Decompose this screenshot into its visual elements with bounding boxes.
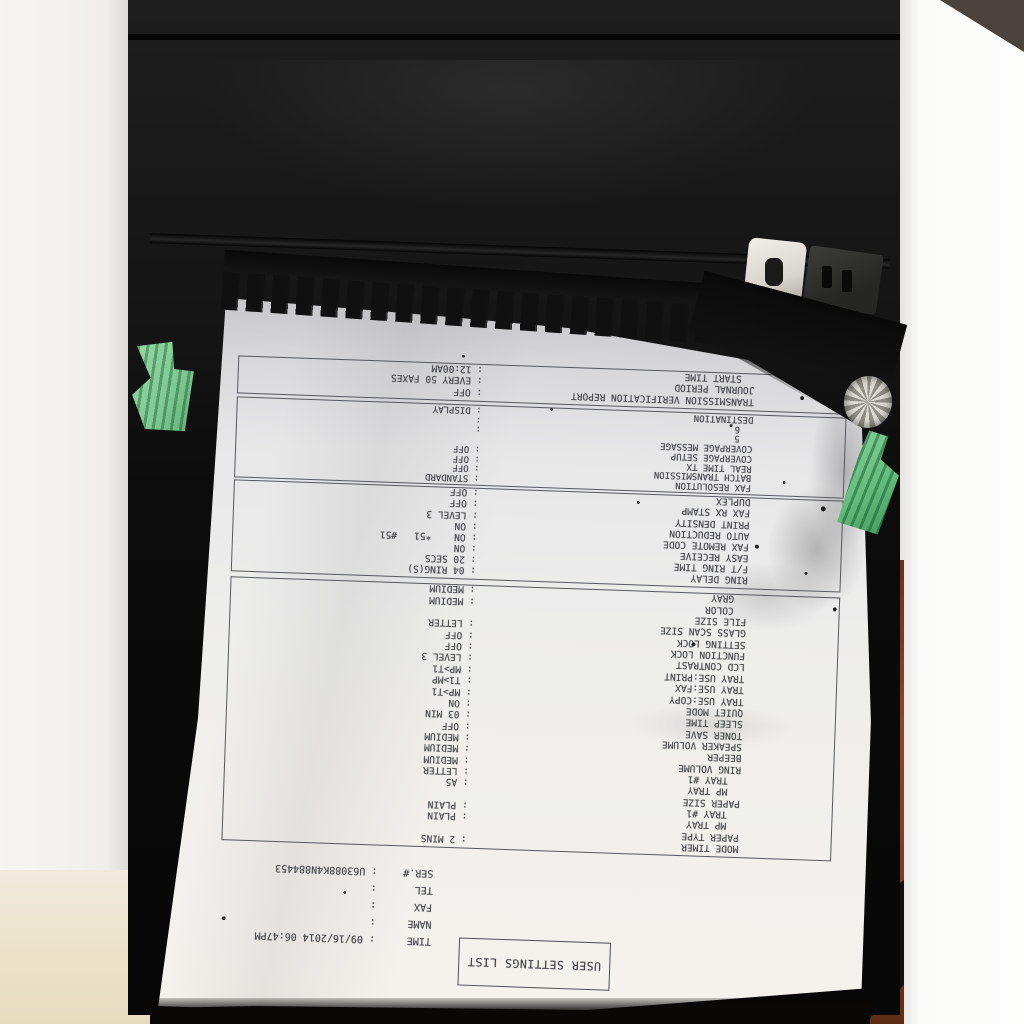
setting-value: : LEVEL 3: [234, 501, 478, 521]
report-info-block: TIME: 09/16/2014 06:47PMNAME:FAX:TEL:SER…: [139, 854, 434, 949]
setting-value: : EVERY 50 FAXES: [239, 366, 483, 386]
setting-label: COVERPAGE MESSAGE: [480, 433, 752, 452]
setting-label: SETTING LOCK: [473, 629, 745, 650]
setting-label: REAL TIME TX: [480, 453, 752, 472]
setting-label: NAME: [375, 914, 432, 933]
setting-value: : 12:00AM: [239, 355, 483, 375]
settings-row: SER.#: U63088K4N884453: [141, 854, 433, 881]
printed-page: USER SETTINGS LIST TIME: 09/16/2014 06:4…: [138, 288, 878, 1023]
setting-value: : OFF: [238, 378, 482, 398]
setting-label: GRAY: [475, 584, 747, 605]
setting-label: QUIET MODE: [471, 697, 743, 718]
setting-value: : STANDARD: [235, 464, 479, 482]
setting-label: COVERPAGE SETUP: [480, 443, 752, 462]
settings-row: FAX:: [140, 888, 432, 915]
setting-value: : MP>T1: [228, 655, 472, 675]
setting-label: FAX RX STAMP: [478, 498, 750, 519]
settings-row: MP TRAY: A5: [225, 768, 741, 797]
setting-value: : T1>MP: [228, 666, 472, 686]
settings-row: MODE TIMER: 2 MINS: [223, 825, 739, 854]
settings-row: TEL:: [141, 871, 433, 898]
setting-label: PRINT DENSITY: [478, 509, 750, 530]
settings-row: TIME: 09/16/2014 06:47PM: [139, 922, 431, 949]
setting-label: TIME: [375, 931, 432, 950]
setting-label: GLASS SCAN SIZE: [474, 618, 746, 639]
settings-row: SLEEP TIME: 03 MIN: [227, 700, 743, 729]
settings-row: FUNCTION LOCK: OFF: [229, 632, 745, 661]
settings-row: JOURNAL PERIOD: EVERY 50 FAXES: [239, 366, 755, 396]
setting-label: PAPER SIZE: [468, 788, 740, 809]
settings-row: SPEAKER VOLUME: MEDIUM: [226, 723, 742, 752]
settings-row: PAPER TYPE: [223, 813, 739, 842]
setting-value: : DISPLAY: [238, 396, 482, 414]
setting-value: : OFF: [236, 435, 480, 453]
setting-label: MP TRAY: [468, 777, 740, 798]
setting-value: : OFF: [234, 490, 478, 510]
setting-value: : MEDIUM: [226, 723, 470, 743]
report-title: USER SETTINGS LIST: [457, 937, 611, 990]
setting-value: : OFF: [229, 632, 473, 652]
setting-value: : MP>T1: [228, 677, 472, 697]
settings-row: TRANSMISSION VERIFICATION REPORT: OFF: [238, 378, 754, 408]
settings-row: BEEPER: MEDIUM: [226, 734, 742, 763]
setting-label: TEL: [377, 880, 434, 899]
setting-value: :: [139, 905, 375, 930]
settings-row: TRAY #1: LETTER: [225, 757, 741, 786]
setting-label: FAX: [376, 897, 433, 916]
settings-row: LCD CONTRAST: LEVEL 3: [229, 643, 745, 672]
setting-label: TRAY USE:FAX: [472, 675, 744, 696]
settings-report-sheet: USER SETTINGS LIST TIME: 09/16/2014 06:4…: [131, 280, 886, 1024]
settings-box-fax-receive: RING DELAY: 04 RING(S)F/T RING TIME: 20 …: [231, 479, 844, 592]
settings-row: FAX REMOTE CODE: ON *51 #51: [233, 523, 749, 552]
setting-value: [230, 598, 474, 618]
setting-label: PAPER TYPE: [467, 822, 739, 843]
photo-scene: USER SETTINGS LIST TIME: 09/16/2014 06:4…: [0, 0, 1024, 1024]
setting-label: F/T RING TIME: [476, 554, 748, 575]
settings-row: 6:: [237, 405, 753, 433]
settings-row: GLASS SCAN SIZE: LETTER: [230, 609, 746, 638]
setting-value: : OFF: [235, 479, 479, 499]
setting-value: :: [237, 405, 481, 423]
setting-label: SLEEP TIME: [471, 709, 743, 730]
settings-row: 5:: [237, 415, 753, 443]
setting-label: TRANSMISSION VERIFICATION REPORT: [482, 386, 754, 407]
settings-row: BATCH TRANSMISSION: OFF: [236, 454, 752, 482]
setting-label: BEEPER: [470, 743, 742, 764]
setting-value: :: [237, 415, 481, 433]
scanner-hinge-hole: [765, 258, 783, 286]
settings-row: EASY RECEIVE: ON: [233, 534, 749, 563]
setting-value: : ON: [233, 512, 477, 532]
settings-row: FILE SIZE: [230, 598, 746, 627]
setting-value: : A5: [225, 768, 469, 788]
setting-label: AUTO REDUCTION: [477, 520, 749, 541]
setting-value: : MEDIUM: [226, 734, 470, 754]
settings-row: SETTING LOCK: OFF: [230, 621, 746, 650]
settings-row: DUPLEX: OFF: [235, 479, 751, 508]
setting-value: : 09/16/2014 06:47PM: [139, 922, 375, 947]
setting-value: :: [140, 888, 376, 913]
setting-label: COLOR: [475, 595, 747, 616]
setting-value: : OFF: [236, 444, 480, 462]
setting-value: : LETTER: [225, 757, 469, 777]
table-shadow: [150, 998, 870, 1024]
setting-value: : ON: [233, 534, 477, 554]
settings-row: COLOR: MEDIUM: [231, 587, 747, 616]
setting-value: : OFF: [236, 454, 480, 472]
hinge-slot: [822, 266, 832, 288]
settings-row: QUIET MODE: ON: [227, 689, 743, 718]
setting-label: START TIME: [483, 363, 755, 384]
setting-label: MP TRAY: [467, 811, 739, 832]
setting-label: LCD CONTRAST: [473, 652, 745, 673]
setting-label: FILE SIZE: [474, 607, 746, 628]
setting-value: : LETTER: [230, 609, 474, 629]
printer-cover-seam: [128, 34, 900, 40]
setting-label: MODE TIMER: [466, 833, 738, 854]
setting-label: FUNCTION LOCK: [473, 641, 745, 662]
setting-value: [224, 779, 468, 799]
settings-row: PRINT DENSITY: LEVEL 3: [234, 501, 750, 530]
setting-label: TONER SAVE: [470, 720, 742, 741]
settings-row: START TIME: 12:00AM: [239, 355, 755, 385]
settings-row: RING VOLUME: MEDIUM: [225, 745, 741, 774]
settings-row: F/T RING TIME: 20 SECS: [232, 545, 748, 574]
setting-value: : MEDIUM: [231, 575, 475, 595]
settings-row: FAX RESOLUTION: STANDARD: [235, 464, 751, 492]
settings-row: AUTO REDUCTION: ON: [233, 512, 749, 541]
setting-label: SER.#: [377, 863, 434, 882]
settings-row: TRAY USE:COPY: MP>T1: [228, 677, 744, 706]
settings-row: NAME:: [139, 905, 431, 932]
setting-label: FAX REMOTE CODE: [477, 531, 749, 552]
setting-value: [237, 425, 481, 443]
settings-row: FAX RX STAMP: OFF: [234, 490, 750, 519]
setting-label: TRAY USE:COPY: [472, 686, 744, 707]
setting-value: : 2 MINS: [223, 825, 467, 845]
setting-value: : OFF: [226, 711, 470, 731]
settings-row: REAL TIME TX: OFF: [236, 444, 752, 472]
settings-box-general: MODE TIMER: 2 MINSPAPER TYPEMP TRAY: PLA…: [221, 576, 840, 861]
settings-row: PAPER SIZE: [224, 779, 740, 808]
settings-row: COVERPAGE SETUP: OFF: [236, 435, 752, 463]
setting-value: : ON: [227, 689, 471, 709]
setting-value: : 04 RING(S): [232, 556, 476, 576]
settings-row: TRAY USE:PRINT: MP>T1: [228, 655, 744, 684]
setting-label: FAX RESOLUTION: [479, 472, 751, 491]
setting-value: : LEVEL 3: [229, 643, 473, 663]
settings-box-fax-send: FAX RESOLUTION: STANDARDBATCH TRANSMISSI…: [234, 396, 846, 498]
settings-row: TRAY USE:FAX: T1>MP: [228, 666, 744, 695]
setting-value: : OFF: [230, 621, 474, 641]
settings-row: MP TRAY: PLAIN: [223, 802, 739, 831]
setting-label: DUPLEX: [478, 487, 750, 508]
setting-label: RING VOLUME: [469, 754, 741, 775]
hinge-slot: [842, 270, 852, 292]
wall-left: [0, 0, 136, 880]
setting-value: : PLAIN: [224, 791, 468, 811]
settings-row: DESTINATION: DISPLAY: [238, 396, 754, 424]
setting-value: : MEDIUM: [231, 587, 475, 607]
setting-label: TRAY #1: [469, 765, 741, 786]
setting-value: : ON *51 #51: [233, 523, 477, 543]
settings-row: TRAY #1: PLAIN: [224, 791, 740, 820]
wall-right: [898, 0, 1024, 1024]
setting-value: : 03 MIN: [227, 700, 471, 720]
settings-row: TONER SAVE: OFF: [226, 711, 742, 740]
printer-top-highlight: [200, 60, 820, 210]
setting-value: : PLAIN: [223, 802, 467, 822]
settings-row: GRAY: MEDIUM: [231, 575, 747, 604]
setting-label: 5: [481, 424, 753, 443]
setting-value: : 20 SECS: [232, 545, 476, 565]
setting-label: BATCH TRANSMISSION: [479, 462, 751, 481]
setting-value: [223, 813, 467, 833]
setting-label: JOURNAL PERIOD: [482, 375, 754, 396]
setting-label: DESTINATION: [481, 404, 753, 423]
setting-label: TRAY USE:PRINT: [472, 663, 744, 684]
setting-label: 6: [481, 414, 753, 433]
setting-value: : MEDIUM: [225, 745, 469, 765]
setting-label: EASY RECEIVE: [477, 543, 749, 564]
settings-row: RING DELAY: 04 RING(S): [232, 556, 748, 585]
setting-label: RING DELAY: [476, 565, 748, 586]
setting-label: SPEAKER VOLUME: [470, 731, 742, 752]
setting-label: TRAY #1: [468, 799, 740, 820]
settings-row: COVERPAGE MESSAGE: [237, 425, 753, 453]
